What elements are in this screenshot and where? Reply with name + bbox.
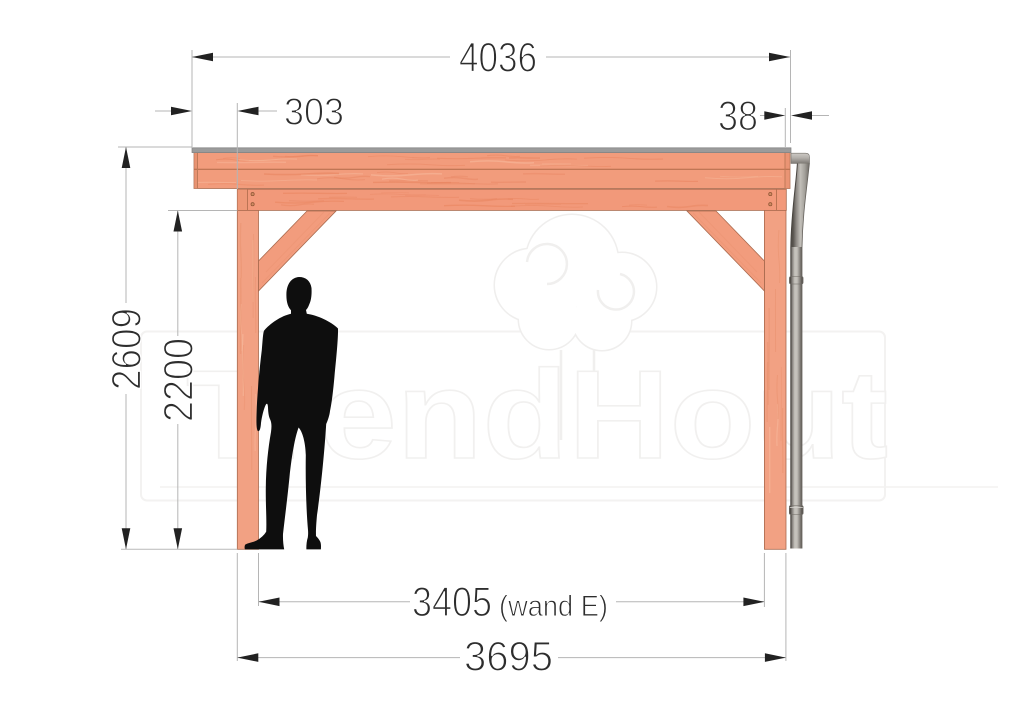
svg-text:2200: 2200 xyxy=(154,338,201,422)
svg-text:4036: 4036 xyxy=(459,34,537,81)
svg-text:303: 303 xyxy=(284,92,344,134)
svg-text:38: 38 xyxy=(718,92,758,139)
svg-text:3695: 3695 xyxy=(464,633,553,680)
svg-text:2609: 2609 xyxy=(103,308,150,390)
